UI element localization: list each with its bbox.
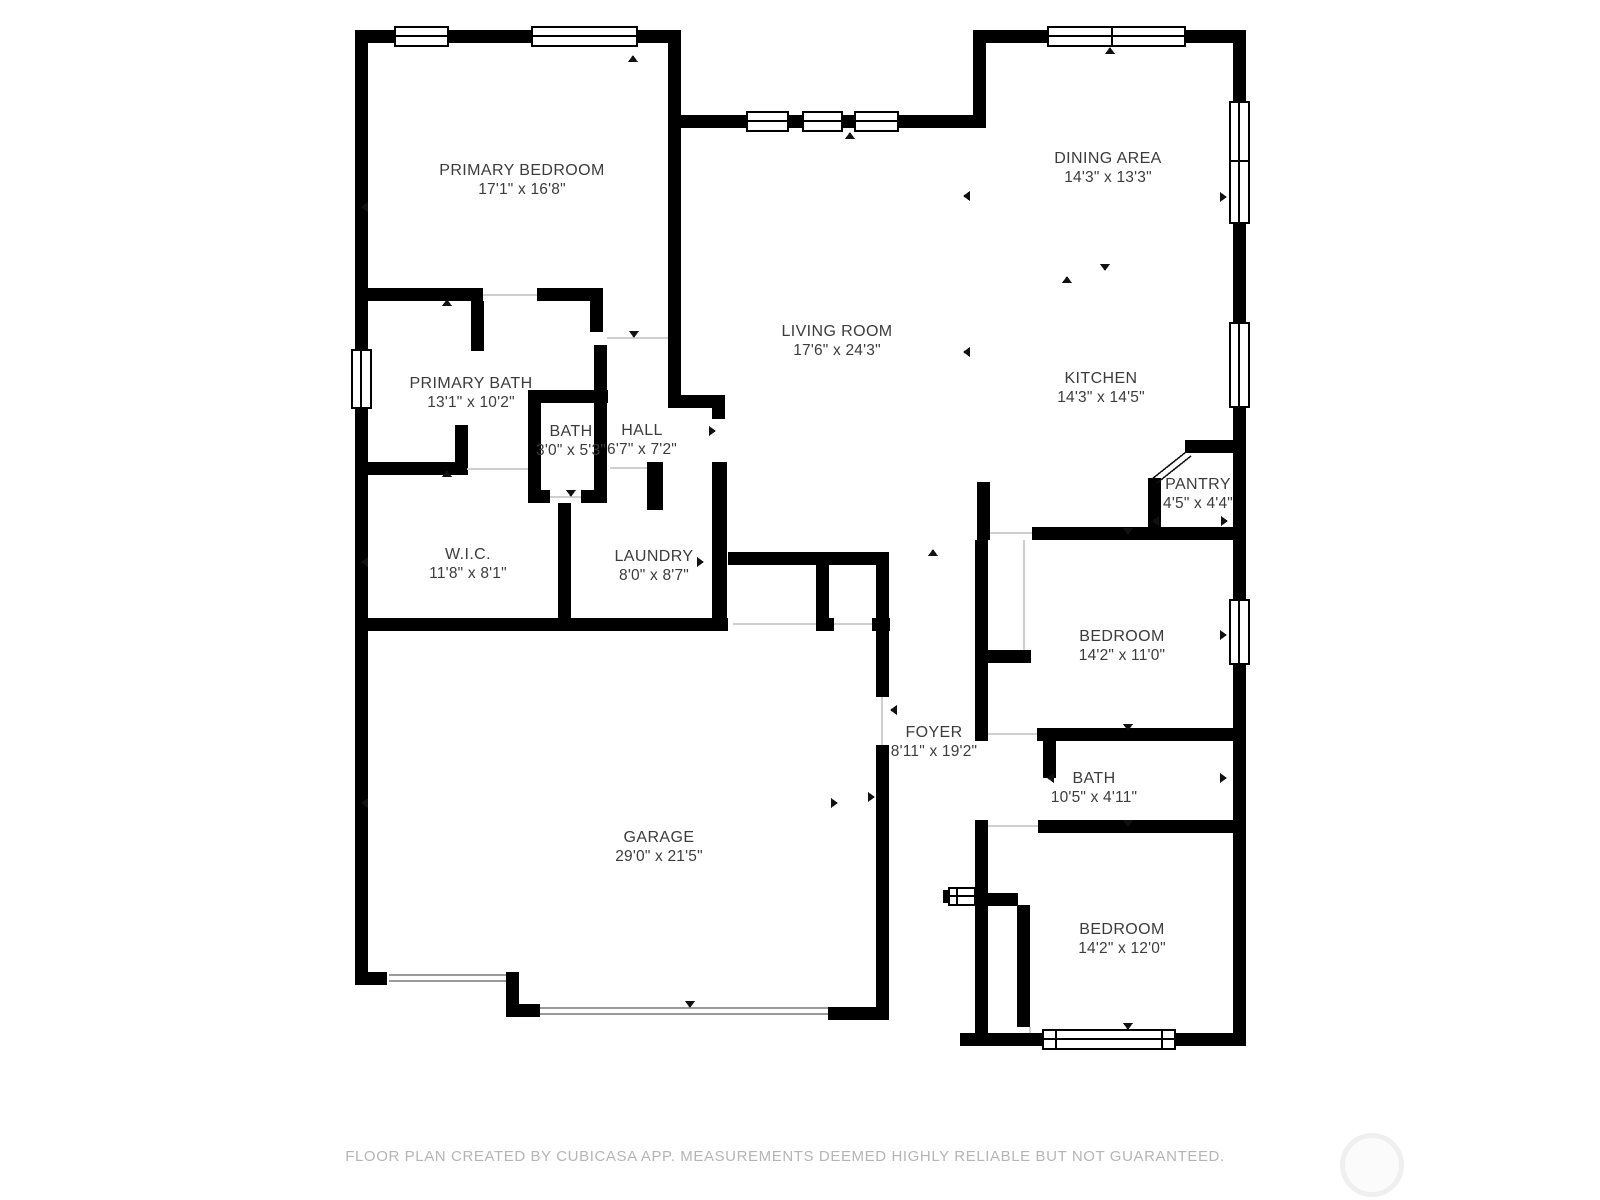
- room-label-primary-bedroom: PRIMARY BEDROOM 17'1" x 16'8": [439, 161, 604, 199]
- room-label-living-room: LIVING ROOM 17'6" x 24'3": [781, 322, 892, 360]
- window-icon: [532, 27, 637, 46]
- room-dimensions: 13'1" x 10'2": [409, 393, 532, 412]
- door-openings-layer: [467, 295, 1038, 1033]
- room-name: LAUNDRY: [615, 547, 694, 566]
- room-name: GARAGE: [615, 828, 703, 847]
- room-name: KITCHEN: [1057, 369, 1145, 388]
- room-dimensions: 8'11" x 19'2": [891, 742, 977, 761]
- room-label-kitchen: KITCHEN 14'3" x 14'5": [1057, 369, 1145, 407]
- entry-door-icon: [949, 888, 975, 905]
- room-label-foyer: FOYER 8'11" x 19'2": [891, 723, 977, 761]
- room-name: W.I.C.: [429, 545, 507, 564]
- room-name: LIVING ROOM: [781, 322, 892, 341]
- room-dimensions: 3'0" x 5'3": [536, 441, 606, 460]
- room-label-bedroom-1: BEDROOM 14'2" x 11'0": [1079, 627, 1165, 665]
- window-icon: [1230, 323, 1249, 407]
- room-label-bath-2: BATH 10'5" x 4'11": [1051, 769, 1137, 807]
- footer-disclaimer: FLOOR PLAN CREATED BY CUBICASA APP. MEAS…: [0, 1148, 1570, 1165]
- room-dimensions: 11'8" x 8'1": [429, 564, 507, 583]
- room-dimensions: 8'0" x 8'7": [615, 566, 694, 585]
- room-label-primary-bath: PRIMARY BATH 13'1" x 10'2": [409, 374, 532, 412]
- window-icon: [747, 112, 788, 131]
- window-icon: [1230, 102, 1249, 223]
- room-name: BEDROOM: [1079, 627, 1165, 646]
- room-dimensions: 10'5" x 4'11": [1051, 788, 1137, 807]
- window-icon: [803, 112, 842, 131]
- room-dimensions: 6'7" x 7'2": [607, 440, 677, 459]
- room-dimensions: 14'2" x 12'0": [1078, 939, 1166, 958]
- room-dimensions: 29'0" x 21'5": [615, 847, 703, 866]
- room-name: PRIMARY BATH: [409, 374, 532, 393]
- room-name: PANTRY: [1163, 475, 1233, 494]
- floorplan-page: PRIMARY BEDROOM 17'1" x 16'8" DINING ARE…: [0, 0, 1600, 1200]
- garage-door-icon: [389, 975, 828, 1014]
- window-icon: [1230, 600, 1249, 664]
- window-icon: [1043, 1030, 1175, 1049]
- room-dimensions: 4'5" x 4'4": [1163, 494, 1233, 513]
- room-label-pantry: PANTRY 4'5" x 4'4": [1163, 475, 1233, 513]
- room-label-hall: HALL 6'7" x 7'2": [607, 421, 677, 459]
- room-name: HALL: [607, 421, 677, 440]
- room-dimensions: 14'2" x 11'0": [1079, 646, 1165, 665]
- floorplan-drawing: [0, 0, 1600, 1200]
- room-name: BEDROOM: [1078, 920, 1166, 939]
- room-name: FOYER: [891, 723, 977, 742]
- room-name: PRIMARY BEDROOM: [439, 161, 604, 180]
- room-label-bedroom-2: BEDROOM 14'2" x 12'0": [1078, 920, 1166, 958]
- watermark-logo: [1340, 1133, 1404, 1197]
- window-icon: [352, 350, 371, 408]
- room-dimensions: 14'3" x 14'5": [1057, 388, 1145, 407]
- room-label-wic: W.I.C. 11'8" x 8'1": [429, 545, 507, 583]
- room-label-garage: GARAGE 29'0" x 21'5": [615, 828, 703, 866]
- room-name: BATH: [1051, 769, 1137, 788]
- window-icon: [395, 27, 448, 46]
- room-label-dining-area: DINING AREA 14'3" x 13'3": [1054, 149, 1162, 187]
- room-name: BATH: [536, 422, 606, 441]
- window-icon: [855, 112, 898, 131]
- room-dimensions: 17'1" x 16'8": [439, 180, 604, 199]
- room-dimensions: 14'3" x 13'3": [1054, 168, 1162, 187]
- room-dimensions: 17'6" x 24'3": [781, 341, 892, 360]
- room-name: DINING AREA: [1054, 149, 1162, 168]
- room-label-bath: BATH 3'0" x 5'3": [536, 422, 606, 460]
- window-icon: [1048, 27, 1185, 46]
- room-label-laundry: LAUNDRY 8'0" x 8'7": [615, 547, 694, 585]
